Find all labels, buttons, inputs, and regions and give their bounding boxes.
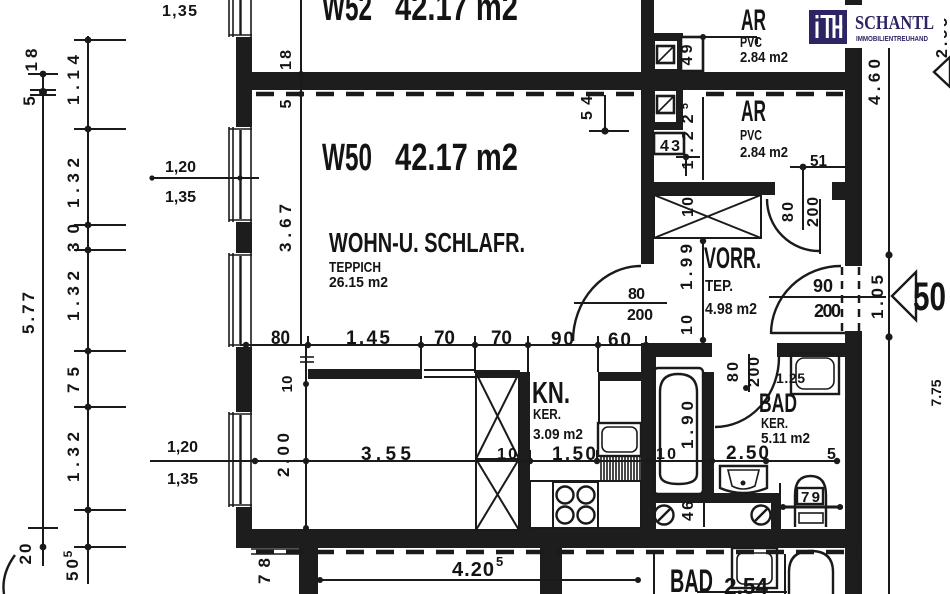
svg-text:1.50: 1.50 [552, 444, 596, 465]
svg-text:BAD: BAD [759, 388, 797, 418]
svg-text:5: 5 [20, 96, 39, 105]
svg-text:W52: W52 [322, 0, 372, 29]
svg-text:5: 5 [679, 103, 691, 109]
svg-text:5: 5 [827, 446, 836, 463]
svg-text:200: 200 [805, 197, 822, 227]
svg-text:WOHN-U. SCHLAFR.: WOHN-U. SCHLAFR. [329, 227, 525, 258]
svg-text:51: 51 [810, 153, 827, 170]
svg-text:1.45: 1.45 [346, 328, 390, 349]
svg-text:10: 10 [279, 376, 296, 393]
svg-text:1.14: 1.14 [64, 54, 83, 105]
svg-text:W50: W50 [322, 137, 372, 179]
svg-text:200: 200 [627, 307, 653, 324]
svg-text:1.25: 1.25 [776, 370, 805, 386]
svg-text:TEP.: TEP. [705, 278, 733, 295]
svg-text:90: 90 [551, 329, 574, 350]
svg-text:5.77: 5.77 [19, 292, 38, 334]
svg-text:1.05: 1.05 [868, 275, 887, 319]
svg-text:KER.: KER. [533, 406, 561, 423]
svg-text:80: 80 [271, 328, 290, 349]
svg-text:60: 60 [608, 330, 631, 351]
svg-text:2.50: 2.50 [726, 443, 769, 464]
svg-text:42.17 m2: 42.17 m2 [395, 0, 518, 29]
svg-text:SCHANTL: SCHANTL [855, 12, 934, 34]
svg-text:1.32: 1.32 [64, 158, 83, 208]
svg-text:AR: AR [741, 4, 766, 37]
svg-text:1,35: 1,35 [165, 189, 196, 206]
svg-text:3.09 m2: 3.09 m2 [533, 426, 583, 443]
svg-text:7.75: 7.75 [928, 379, 944, 406]
svg-text:26.15 m2: 26.15 m2 [329, 274, 388, 291]
svg-text:4.20: 4.20 [452, 559, 494, 581]
svg-text:BAD: BAD [670, 563, 713, 594]
svg-text:5: 5 [278, 99, 295, 108]
svg-text:1,20: 1,20 [165, 159, 196, 176]
svg-text:2.84 m2: 2.84 m2 [740, 49, 788, 66]
svg-text:80: 80 [628, 286, 645, 303]
svg-text:1,35: 1,35 [167, 471, 198, 488]
svg-text:VORR.: VORR. [704, 242, 761, 275]
svg-text:1,20: 1,20 [167, 439, 198, 456]
svg-text:4.98 m2: 4.98 m2 [705, 301, 757, 318]
svg-text:2.00: 2.00 [274, 433, 293, 477]
svg-text:90: 90 [813, 276, 833, 296]
svg-text:4.60: 4.60 [865, 59, 884, 105]
svg-text:3.55: 3.55 [361, 444, 411, 465]
svg-text:200: 200 [746, 357, 763, 387]
svg-text:1.99: 1.99 [677, 244, 696, 290]
svg-text:70: 70 [491, 328, 512, 349]
svg-text:70: 70 [434, 328, 455, 349]
svg-text:KN.: KN. [532, 375, 570, 410]
svg-text:5: 5 [496, 554, 503, 569]
svg-text:200: 200 [814, 301, 841, 321]
svg-text:42.17 m2: 42.17 m2 [395, 137, 518, 179]
svg-text:1.32: 1.32 [64, 432, 83, 482]
svg-text:1.90: 1.90 [678, 401, 697, 449]
svg-text:2.84 m2: 2.84 m2 [740, 144, 788, 161]
svg-text:1.32: 1.32 [64, 271, 83, 321]
svg-text:IMMOBILIENTREUHAND: IMMOBILIENTREUHAND [856, 36, 928, 43]
svg-text:3.67: 3.67 [276, 204, 295, 252]
svg-text:2.54: 2.54 [724, 573, 768, 594]
svg-text:50: 50 [913, 275, 946, 319]
svg-text:1,35: 1,35 [162, 3, 197, 20]
svg-text:AR: AR [741, 95, 766, 128]
svg-text:5: 5 [61, 550, 75, 557]
svg-text:PVC: PVC [740, 127, 762, 144]
